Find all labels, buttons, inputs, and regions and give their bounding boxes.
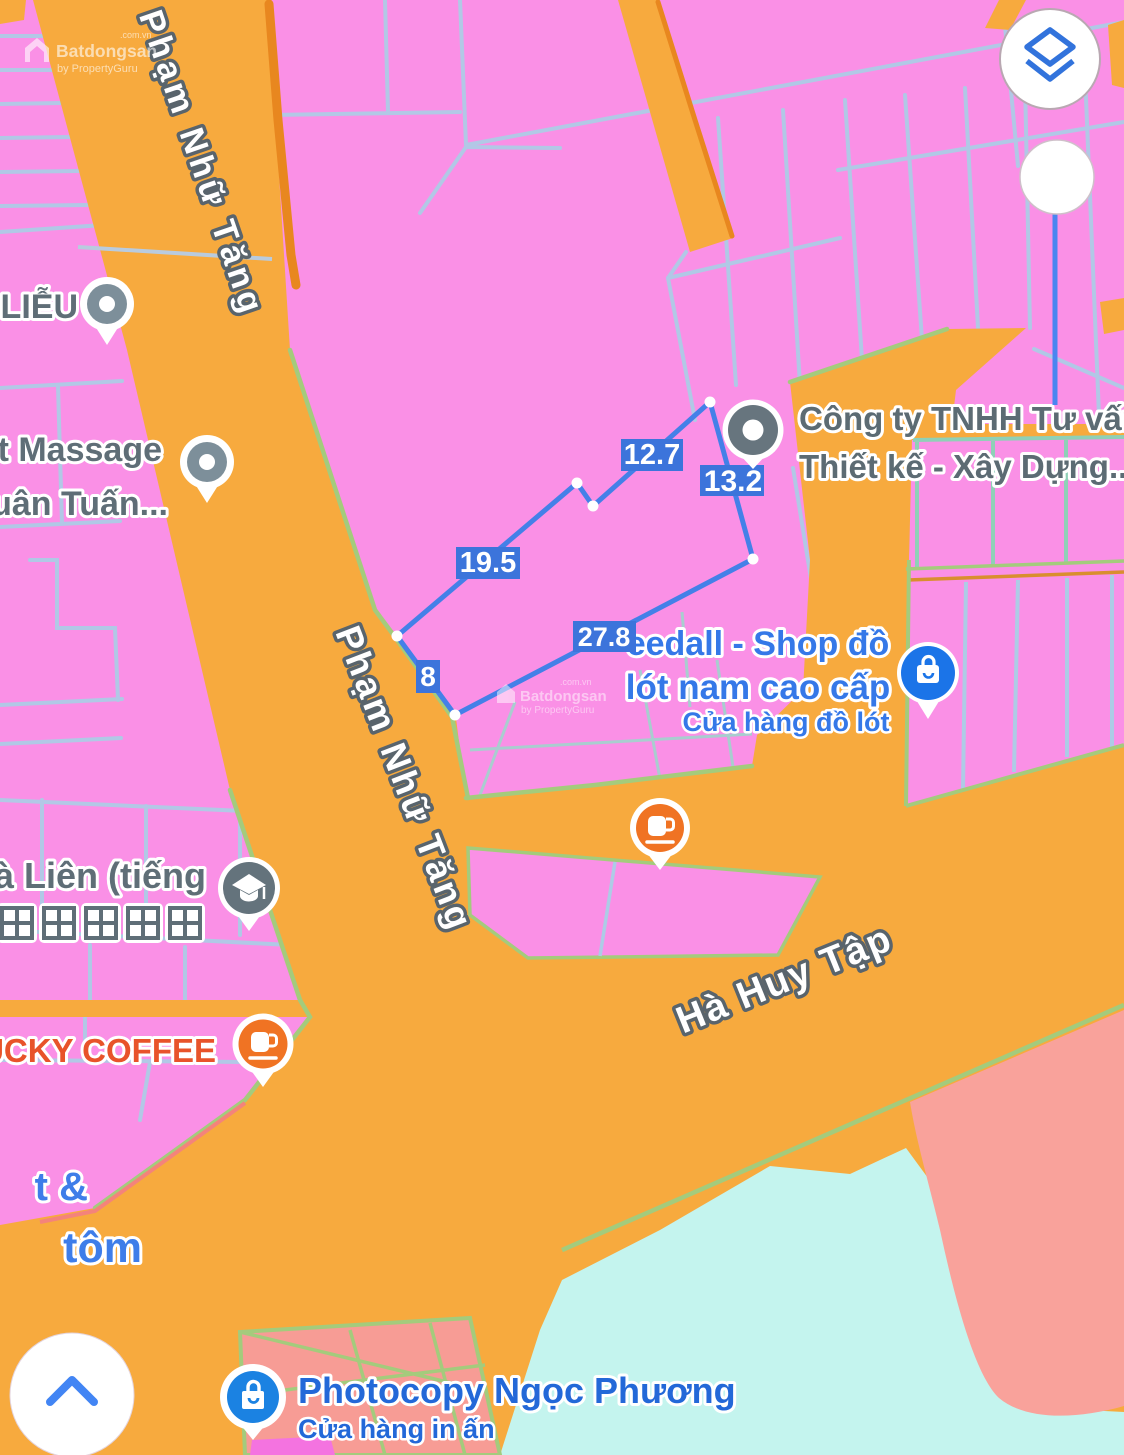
svg-text:Photocopy Ngọc Phương: Photocopy Ngọc Phương (298, 1370, 736, 1411)
svg-text:Batdongsan: Batdongsan (520, 688, 607, 705)
svg-text:Cửa hàng in ấn: Cửa hàng in ấn (298, 1414, 495, 1444)
svg-text:t Massage: t Massage (0, 431, 162, 469)
svg-text:tôm: tôm (63, 1224, 142, 1272)
svg-text:Công ty TNHH Tư vấn: Công ty TNHH Tư vấn (799, 400, 1124, 437)
svg-text:by PropertyGuru: by PropertyGuru (57, 63, 138, 75)
svg-text:13.2: 13.2 (704, 465, 762, 498)
svg-text:UCKY COFFEE: UCKY COFFEE (0, 1032, 216, 1069)
svg-text:eedall - Shop đồ: eedall - Shop đồ (627, 625, 890, 663)
svg-text:Hà Liên (tiếng: Hà Liên (tiếng (0, 855, 206, 896)
svg-text:Cửa hàng đồ lót: Cửa hàng đồ lót (682, 707, 889, 737)
svg-text:.com.vn: .com.vn (560, 677, 592, 687)
svg-text:.com.vn: .com.vn (120, 30, 152, 40)
svg-text:Batdongsan: Batdongsan (56, 41, 157, 61)
svg-text:uân Tuấn...: uân Tuấn... (0, 485, 168, 523)
svg-text:LIỄU: LIỄU (1, 288, 78, 326)
svg-text:by PropertyGuru: by PropertyGuru (521, 705, 594, 716)
svg-text:8: 8 (420, 661, 436, 692)
svg-text:Thiết kế - Xây Dựng...: Thiết kế - Xây Dựng... (799, 448, 1124, 485)
svg-text:t &: t & (35, 1165, 88, 1209)
svg-text:12.7: 12.7 (624, 439, 680, 471)
svg-text:27.8: 27.8 (578, 622, 631, 652)
svg-text:19.5: 19.5 (460, 547, 516, 579)
svg-text:lót nam cao cấp: lót nam cao cấp (626, 668, 891, 707)
